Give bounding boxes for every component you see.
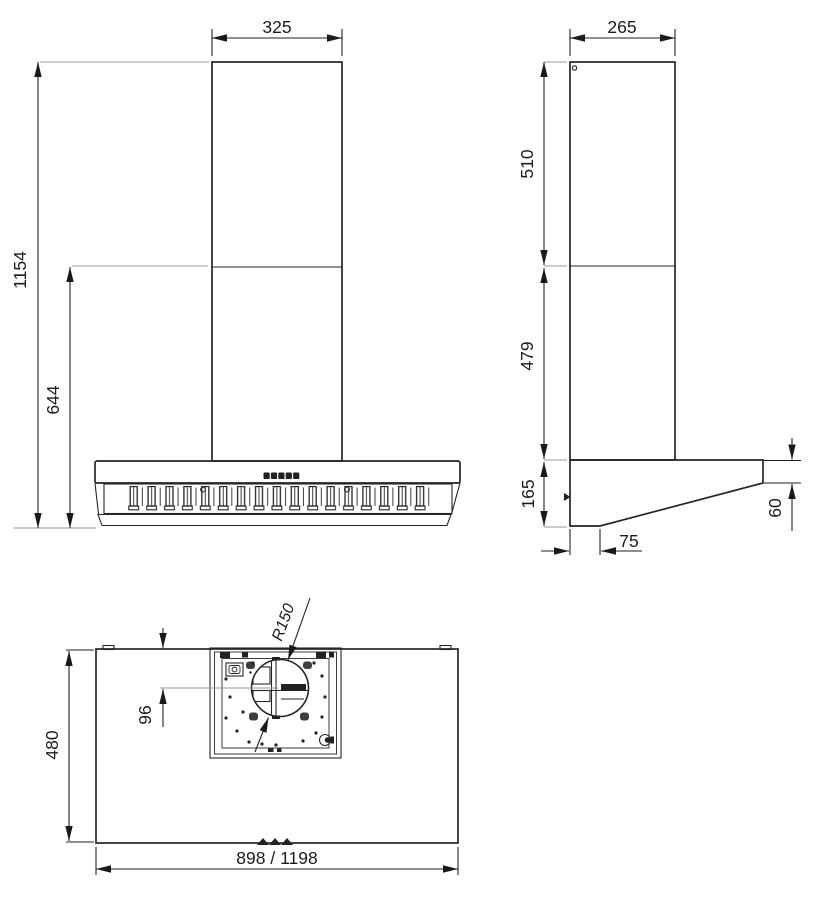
dim-label-510: 510 bbox=[517, 149, 537, 178]
plan-mounting-plate bbox=[210, 648, 341, 758]
hole-top-tab bbox=[272, 657, 280, 661]
cable-gland bbox=[320, 735, 335, 746]
dim-label-96: 96 bbox=[135, 705, 155, 724]
dim-bottom-front-offset: 75 bbox=[541, 529, 642, 555]
side-view: 265 510 479 165 60 bbox=[517, 17, 801, 555]
dim-lower-chimney: 479 bbox=[517, 268, 567, 460]
dim-label-644: 644 bbox=[43, 385, 63, 414]
dim-outlet-offset: 96 bbox=[135, 628, 278, 727]
dim-label-480: 480 bbox=[42, 730, 62, 759]
dim-total-height: 1154 bbox=[10, 62, 209, 528]
dim-label-898-1198: 898 / 1198 bbox=[236, 848, 317, 868]
dim-label-r150: R150 bbox=[269, 601, 298, 643]
side-chimney bbox=[570, 62, 675, 460]
dim-label-60: 60 bbox=[765, 498, 785, 518]
dim-label-265: 265 bbox=[607, 17, 636, 37]
front-view: 325 1154 644 bbox=[10, 17, 460, 528]
dim-upper-chimney: 510 bbox=[517, 62, 567, 266]
plan-break-mark bbox=[257, 838, 293, 845]
dim-label-75: 75 bbox=[619, 531, 638, 551]
front-left-side-line bbox=[95, 483, 99, 514]
side-screw bbox=[572, 66, 576, 70]
plan-view: 480 96 R150 898 / 1198 bbox=[42, 598, 458, 875]
dim-chimney-depth: 265 bbox=[570, 17, 675, 56]
dim-plan-width: 898 / 1198 bbox=[96, 847, 458, 875]
dim-body-rear-height: 165 bbox=[518, 462, 567, 527]
side-hood-profile bbox=[570, 460, 763, 526]
front-control-panel bbox=[264, 473, 300, 480]
diagram-canvas: 325 1154 644 265 bbox=[0, 0, 814, 897]
plate-bracket-marks bbox=[220, 652, 334, 753]
front-bottom-rim bbox=[98, 515, 451, 526]
dim-plan-depth: 480 bbox=[42, 650, 94, 842]
dim-label-1154: 1154 bbox=[10, 251, 30, 289]
front-grille-slats bbox=[128, 486, 432, 512]
hole-bottom-tab bbox=[272, 716, 280, 720]
dim-outlet-radius: R150 bbox=[255, 598, 310, 752]
front-hood-top-band bbox=[95, 461, 460, 483]
dim-label-165: 165 bbox=[518, 479, 538, 508]
front-right-side-line bbox=[452, 483, 461, 514]
dim-body-front-height: 60 bbox=[764, 438, 801, 531]
dim-chimney-width: 325 bbox=[212, 17, 342, 56]
front-chimney bbox=[212, 62, 342, 461]
dim-label-479: 479 bbox=[517, 341, 537, 370]
technical-drawing-page: 325 1154 644 265 bbox=[0, 0, 814, 897]
dim-label-325: 325 bbox=[262, 17, 291, 37]
